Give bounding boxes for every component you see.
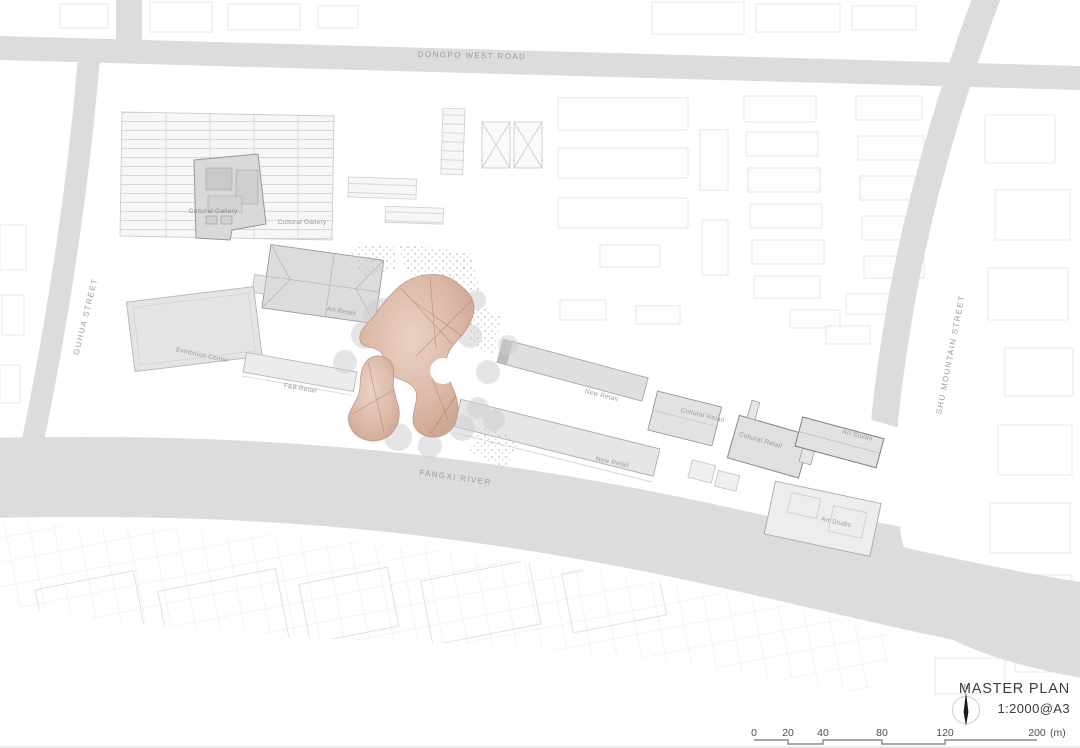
building-exhibition-center [126, 287, 262, 372]
label-cultural-gallery-east: Cultural Gallery [278, 219, 327, 226]
label-cultural-gallery-west: Cultural Gallery [189, 208, 238, 215]
background-fabric-west [0, 225, 26, 403]
road-label-guhua: GUHUA STREET [72, 277, 100, 356]
scale-tick-0: 0 [751, 727, 757, 739]
scale-bar-line [754, 740, 1037, 744]
background-fabric-east-housing [558, 96, 928, 344]
scale-tick-40: 40 [817, 727, 829, 739]
drawing-scale-note: 1:2000@A3 [959, 701, 1070, 716]
scale-tick-200: 200 [1028, 727, 1046, 739]
scale-tick-80: 80 [876, 727, 888, 739]
background-fabric-north [60, 2, 916, 34]
scale-tick-20: 20 [782, 727, 794, 739]
title-block: MASTER PLAN 1:2000@A3 [959, 681, 1070, 716]
road-dongpo-west [0, 36, 1080, 90]
road-label-shu-mountain: SHU MOUNTAIN STREET [935, 294, 967, 415]
road-guhua-street [32, 46, 90, 445]
road-stub-north [116, 0, 142, 44]
drawing-title: MASTER PLAN [959, 681, 1070, 697]
master-plan-sheet: DONGPO WEST ROAD GUHUA STREET SHU MOUNTA… [0, 0, 1080, 748]
scale-unit: (m) [1050, 727, 1066, 739]
site-plan-drawing: DONGPO WEST ROAD GUHUA STREET SHU MOUNTA… [0, 0, 1080, 748]
scale-bar: 0 20 40 80 120 200 (m) [0, 727, 1080, 747]
